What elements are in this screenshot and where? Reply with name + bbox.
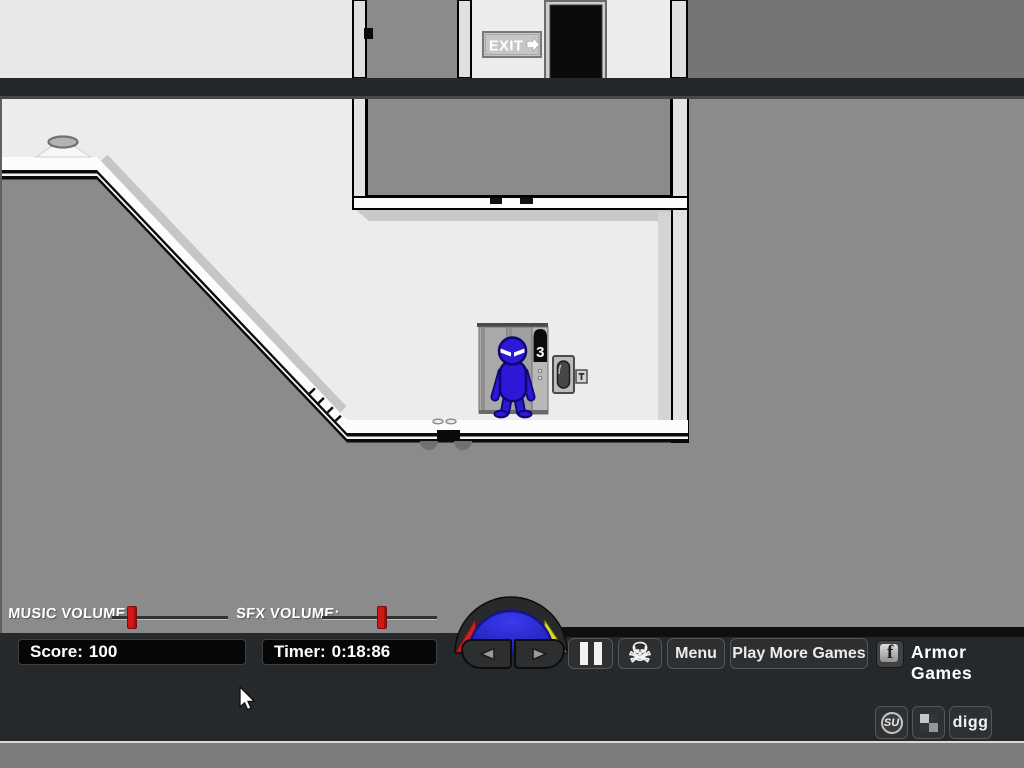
character-foot-right	[519, 411, 532, 418]
stumbleupon-button[interactable]: SU	[875, 706, 908, 739]
menu-button[interactable]: Menu	[667, 638, 725, 669]
upper-wall-2	[458, 0, 471, 78]
digg-button[interactable]: digg	[949, 706, 992, 739]
facebook-icon[interactable]: f	[876, 640, 904, 668]
panel-top-strip	[540, 627, 1024, 637]
next-button[interactable]	[514, 639, 565, 669]
elevator-door-bottom	[479, 410, 548, 414]
sfx-volume-handle[interactable]	[377, 606, 387, 629]
upper-floor-room-left	[0, 0, 352, 78]
page-bottom-strip	[0, 743, 1024, 768]
mouse-cursor	[238, 686, 258, 712]
score-label: Score:	[30, 642, 83, 662]
elevator-button-dot-2	[538, 376, 542, 380]
music-volume-handle[interactable]	[127, 606, 137, 629]
ceiling-bevel	[355, 209, 688, 221]
exit-sign: ​ EXIT	[483, 32, 541, 57]
elevator-certificate-sign	[576, 370, 587, 383]
screen-left-edge	[0, 99, 2, 633]
pressure-plate	[49, 137, 78, 148]
facebook-f-glyph: f	[887, 644, 893, 662]
previous-button[interactable]	[461, 639, 512, 669]
timer-display: Timer: 0:18:86	[262, 639, 437, 665]
upper-floor-fill-right	[688, 0, 1024, 78]
score-display: Score: 100	[18, 639, 246, 665]
elevator-frame-top	[477, 323, 548, 327]
right-arrow-icon	[530, 647, 550, 661]
timer-label: Timer:	[274, 642, 326, 662]
facebook-icon-plate: f	[880, 644, 898, 662]
exit-door	[545, 1, 606, 79]
solid-block	[367, 97, 671, 196]
right-wall-bevel	[658, 212, 672, 428]
character-foot-left	[495, 411, 508, 418]
elevator-door-left-shade	[481, 328, 485, 412]
left-arrow-icon	[477, 647, 497, 661]
beam-underline	[0, 96, 1024, 99]
character-torso	[500, 361, 526, 401]
structural-beam	[0, 78, 1024, 96]
floor-vent-left	[433, 419, 443, 424]
play-more-games-button[interactable]: Play More Games	[730, 638, 868, 669]
ceiling-hinge-left	[490, 198, 502, 205]
wall-notch	[364, 28, 373, 39]
menu-button-label: Menu	[675, 645, 717, 663]
ceiling-hinge-right	[520, 198, 533, 205]
delicious-icon	[920, 714, 938, 732]
elevator-button-dot-1	[538, 369, 542, 373]
elevator-call-button	[558, 361, 570, 388]
pause-icon	[580, 642, 588, 665]
game-stage: ​ EXIT	[0, 0, 1024, 768]
play-more-games-label: Play More Games	[732, 645, 865, 663]
suicide-button[interactable]: ☠	[618, 638, 662, 669]
upper-wall-3	[671, 0, 687, 78]
score-value: 100	[89, 642, 117, 662]
level-scene: ​ EXIT	[0, 0, 1024, 633]
block-left-wall	[353, 97, 366, 197]
armor-games-link[interactable]: Armor Games	[911, 642, 1024, 684]
room-right-wall	[672, 97, 688, 442]
digg-label: digg	[953, 714, 989, 732]
stumbleupon-icon: SU	[881, 712, 903, 734]
floor-vent-right	[446, 419, 456, 424]
floor-notch	[437, 430, 460, 440]
skull-crossbones-icon: ☠	[628, 640, 652, 667]
exit-sign-text: EXIT	[489, 39, 523, 55]
delicious-button[interactable]	[912, 706, 945, 739]
timer-value: 0:18:86	[332, 642, 391, 662]
pause-button[interactable]	[568, 638, 613, 669]
elevator-floor-number: 3	[536, 344, 544, 361]
